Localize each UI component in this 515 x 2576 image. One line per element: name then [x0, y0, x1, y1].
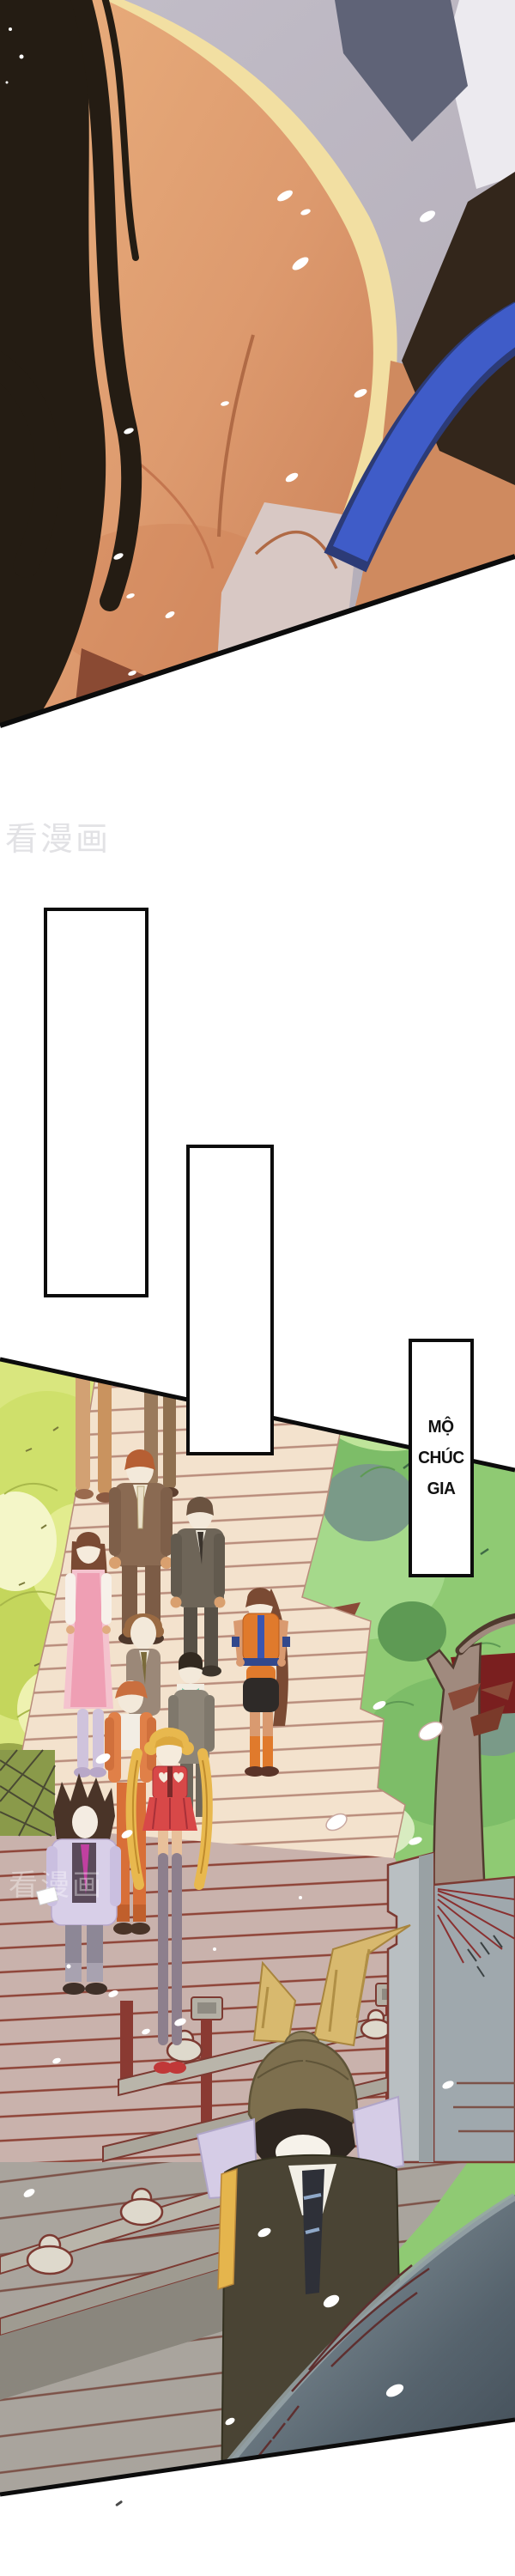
speech-bubble-empty-1	[44, 908, 148, 1297]
name-bubble-line-1: MỘ	[428, 1418, 454, 1437]
panel-closeup-art	[0, 0, 515, 730]
lattice-fence	[0, 1750, 55, 1836]
name-bubble-line-2: CHÚC	[418, 1449, 464, 1468]
speech-bubble-empty-2	[186, 1145, 274, 1455]
name-bubble-line-3: GIA	[427, 1479, 456, 1499]
comic-page: 看漫画	[0, 0, 515, 2576]
stone-gatepost	[388, 1853, 515, 2162]
site-watermark-faint: 看漫画	[9, 1862, 104, 1904]
site-watermark: 看漫画	[5, 812, 111, 860]
strap	[218, 2169, 237, 2289]
name-bubble: MỘ CHÚC GIA	[409, 1339, 474, 1577]
